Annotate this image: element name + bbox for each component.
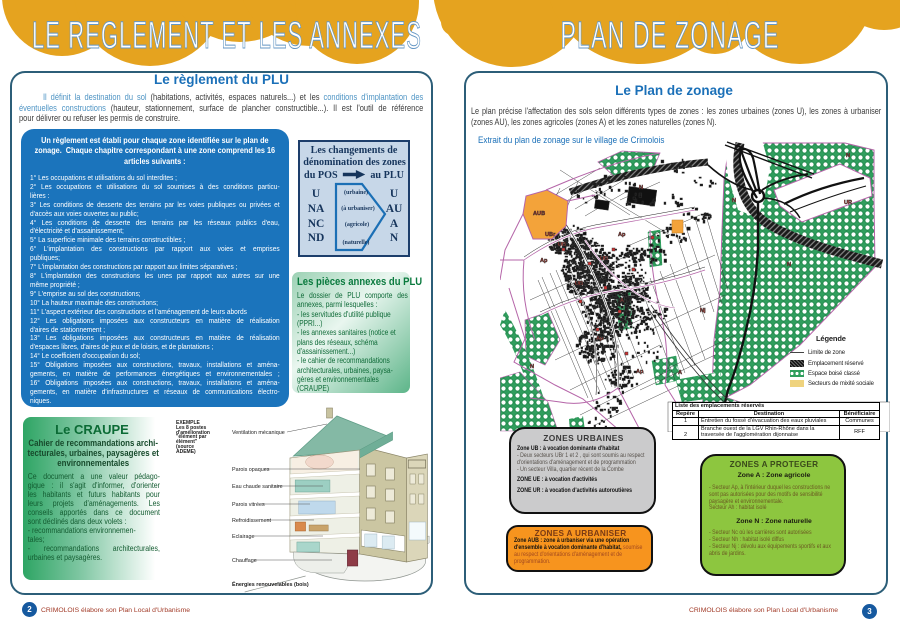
svg-text:Nj: Nj: [700, 308, 706, 314]
svg-text:N: N: [732, 198, 736, 204]
svg-text:Chauffage: Chauffage: [232, 558, 257, 564]
svg-text:Ap: Ap: [540, 258, 548, 264]
svg-text:Parois opaques: Parois opaques: [232, 467, 270, 473]
svg-text:Ap: Ap: [636, 369, 644, 375]
svg-text:N: N: [639, 185, 643, 191]
svg-text:N: N: [787, 262, 791, 268]
svg-text:UBr: UBr: [545, 232, 556, 238]
svg-text:UB: UB: [558, 242, 566, 248]
svg-text:(agricole): (agricole): [345, 221, 369, 228]
svg-text:N: N: [530, 364, 534, 370]
svg-text:UB: UB: [575, 281, 583, 287]
svg-text:Énergies renouvelables (bois): Énergies renouvelables (bois): [232, 580, 309, 588]
svg-text:A: A: [678, 370, 682, 376]
svg-text:(urbaine): (urbaine): [344, 189, 368, 196]
svg-text:Eclairage: Eclairage: [232, 534, 254, 540]
svg-text:Refroidissement: Refroidissement: [232, 518, 271, 524]
svg-text:AUB: AUB: [533, 211, 545, 217]
svg-text:Eau chaude sanitaire: Eau chaude sanitaire: [232, 484, 283, 490]
svg-text:N: N: [846, 153, 850, 159]
svg-text:UB: UB: [600, 256, 608, 262]
svg-text:Ap: Ap: [596, 336, 604, 342]
svg-text:A: A: [620, 298, 624, 304]
svg-text:(à urbaniser): (à urbaniser): [341, 205, 375, 212]
svg-text:Ventilation mécanique: Ventilation mécanique: [232, 430, 285, 436]
svg-text:Ap: Ap: [618, 232, 626, 238]
svg-text:UR: UR: [844, 200, 852, 206]
svg-text:Parois vitrées: Parois vitrées: [232, 502, 265, 508]
svg-text:(naturelle): (naturelle): [343, 239, 370, 246]
